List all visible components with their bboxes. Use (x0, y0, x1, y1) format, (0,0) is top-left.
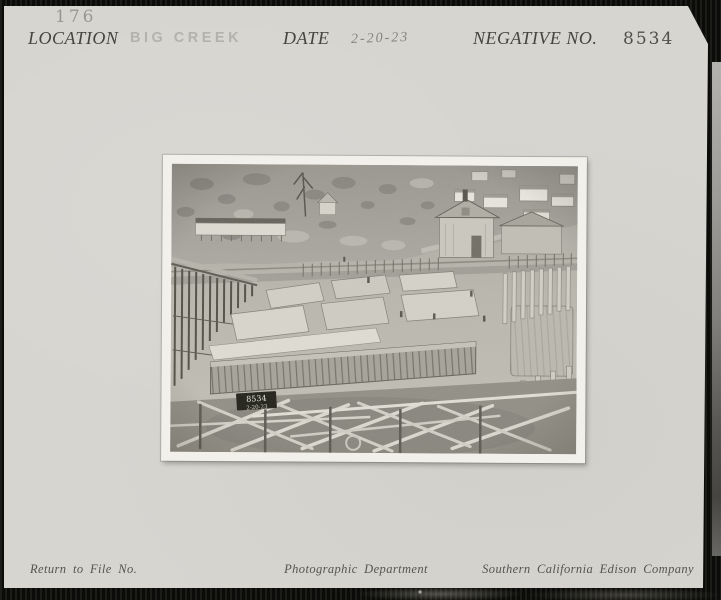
header-field-row: LOCATION BIG CREEK DATE 2-20-23 NEGATIVE… (4, 28, 708, 54)
negative-number-value: 8534 (623, 29, 674, 49)
page-edge-strip (712, 62, 721, 556)
file-number-stamp: 176 (55, 7, 96, 27)
scanned-archive-page: 176 LOCATION BIG CREEK DATE 2-20-23 NEGA… (0, 0, 721, 600)
location-label: LOCATION (28, 28, 118, 49)
photo-mount-card: 176 LOCATION BIG CREEK DATE 2-20-23 NEGA… (4, 6, 708, 588)
footer-company: Southern California Edison Company (482, 562, 694, 577)
date-value-handwritten: 2-20-23 (351, 30, 410, 48)
date-label: DATE (283, 28, 329, 49)
negative-number-label: NEGATIVE NO. (473, 28, 597, 49)
vignette-overlay (170, 164, 578, 454)
location-value-stamp: BIG CREEK (130, 30, 242, 46)
construction-photo-image: 8534 2-20-23 (170, 164, 578, 454)
construction-photograph: 8534 2-20-23 (161, 155, 587, 464)
